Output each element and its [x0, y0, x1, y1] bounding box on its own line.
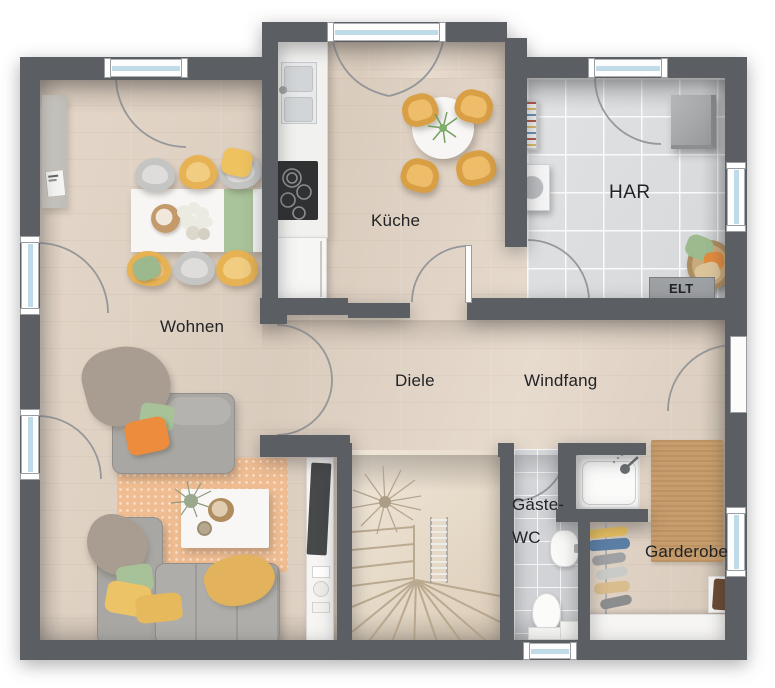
entrance-door-leaf	[730, 336, 747, 413]
room-shadow	[352, 455, 500, 491]
sink-basin	[284, 66, 313, 92]
window-har-top	[588, 59, 668, 77]
cabinet-papers	[45, 169, 67, 198]
room-label-har: HAR	[609, 182, 651, 204]
window-har-right	[727, 162, 745, 232]
wall-left-outer	[20, 57, 40, 660]
wall-stair-left	[337, 443, 352, 645]
toilet-cistern	[528, 627, 564, 640]
wall-wc-top-left	[498, 443, 514, 457]
fruit-bowl	[151, 204, 180, 233]
wc-side-shelf	[560, 621, 580, 640]
wall-kueche-bottom-a	[262, 298, 348, 315]
window-kueche-french	[327, 23, 446, 41]
tv-accessory	[312, 602, 330, 613]
coffee-table-vase	[197, 521, 212, 536]
room-label-gaeste-wc-line2: WC	[512, 528, 541, 548]
table-runner	[224, 189, 253, 252]
room-label-diele: Diele	[395, 371, 435, 391]
kueche-door-leaf	[465, 245, 472, 303]
floorplan-canvas: Wohnen Küche HAR ELT Diele Windfang Gäst…	[0, 0, 775, 688]
room-label-wohnen: Wohnen	[160, 317, 224, 337]
toilet-bowl	[532, 593, 561, 631]
wall-wc-right	[578, 521, 590, 641]
wall-har-bottom	[467, 298, 747, 320]
sofa-headrest	[167, 397, 231, 425]
water-tank	[671, 95, 716, 149]
tv-accessory	[313, 581, 329, 597]
wall-kueche-bottom-b	[348, 303, 410, 318]
room-label-garderobe: Garderobe	[645, 542, 728, 562]
pillow-yellow	[135, 592, 184, 625]
window-left-a	[21, 236, 39, 315]
window-wohnen-top	[104, 59, 188, 77]
window-left-b	[21, 409, 39, 480]
wall-shower-bottom	[556, 509, 648, 522]
sink-faucet	[279, 86, 287, 94]
room-shadow	[40, 80, 278, 114]
room-shadow	[262, 320, 727, 350]
coffee-table-tray	[208, 498, 234, 522]
wall-kueche-har	[505, 38, 527, 247]
wall-wohnen-kueche	[262, 22, 278, 298]
room-label-kueche: Küche	[371, 211, 420, 231]
room-label-windfang: Windfang	[524, 371, 597, 391]
fridge-handle	[320, 241, 322, 297]
shower-tray-inner	[582, 461, 636, 505]
room-label-elt: ELT	[669, 281, 694, 296]
tv-accessory	[312, 566, 330, 578]
sink-basin	[284, 97, 313, 122]
cooktop	[277, 161, 318, 220]
window-wc-bottom	[523, 643, 577, 659]
room-label-gaeste-wc-line1: Gäste-	[512, 495, 564, 515]
window-right-lower	[727, 507, 745, 577]
wall-bottom-outer	[20, 640, 747, 660]
